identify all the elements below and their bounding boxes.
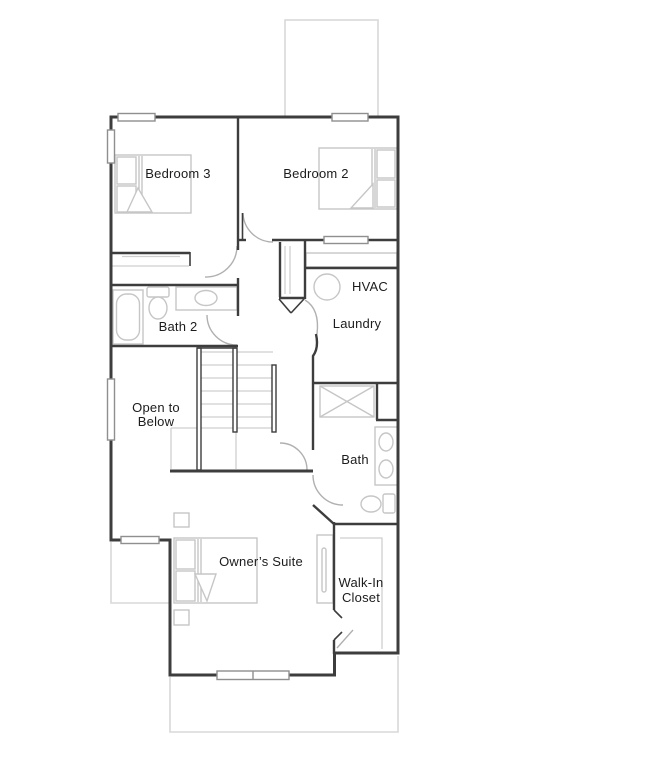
- left-roof-outline: [111, 542, 170, 603]
- laundry-counter-icon: [306, 253, 397, 267]
- nightstand-icon: [174, 513, 189, 527]
- room-label-bath-2: Bath 2: [159, 319, 198, 334]
- floor-plan-drawing: Bedroom 3 Bedroom 2 Bath 2 HVAC Laundry …: [0, 0, 650, 778]
- nightstand-icon: [174, 610, 189, 625]
- window: [121, 537, 159, 544]
- dresser-mirror-icon: [317, 535, 333, 603]
- linen-closet-icon: [320, 386, 374, 417]
- laundry-door-swing: [305, 300, 318, 334]
- upper-roof-outline: [285, 20, 378, 117]
- staircase: [171, 348, 276, 470]
- window: [108, 379, 115, 440]
- hall-door-swing: [280, 443, 307, 470]
- stair-rail: [233, 348, 237, 432]
- window: [332, 114, 368, 122]
- room-label-open-to-below: Open to: [132, 400, 180, 415]
- room-label-owners-suite: Owner’s Suite: [219, 554, 303, 569]
- bath-2-door-swing: [207, 315, 237, 345]
- roof-outlines: [111, 20, 398, 732]
- bath-2-tub-icon: [113, 290, 143, 344]
- room-label-bedroom-3: Bedroom 3: [145, 166, 210, 181]
- bath-vanity-icon: [375, 427, 398, 485]
- room-label-bath: Bath: [341, 452, 369, 467]
- owners-suite-bed-icon: [174, 538, 257, 603]
- bath-2-vanity-icon: [176, 287, 237, 310]
- stair-rail: [197, 348, 201, 470]
- lower-roof-outline: [170, 656, 398, 732]
- fixtures: [112, 148, 398, 649]
- room-label-walk-in-closet: Walk-In: [339, 575, 384, 590]
- window: [324, 237, 368, 244]
- floor-plan-page: Bedroom 3 Bedroom 2 Bath 2 HVAC Laundry …: [0, 0, 650, 778]
- bath-2-toilet-icon: [147, 287, 169, 319]
- bedroom-3-door-swing: [205, 246, 237, 277]
- window: [108, 130, 115, 163]
- bedroom-2-door-swing: [243, 213, 273, 242]
- bath-toilet-icon: [361, 494, 395, 513]
- owners-suite-door-swing: [313, 475, 343, 505]
- room-label-open-to-below-2: Below: [138, 414, 175, 429]
- stair-rail: [272, 365, 276, 432]
- hall-right-wall: [313, 334, 317, 450]
- bedroom-3-bed-icon: [115, 155, 191, 213]
- room-label-walk-in-closet-2: Closet: [342, 590, 380, 605]
- room-label-hvac: HVAC: [352, 279, 388, 294]
- room-label-laundry: Laundry: [333, 316, 382, 331]
- walkin-closet-door-leaf: [337, 630, 353, 648]
- window: [118, 114, 155, 122]
- room-label-bedroom-2: Bedroom 2: [283, 166, 348, 181]
- hvac-unit-icon: [314, 274, 340, 300]
